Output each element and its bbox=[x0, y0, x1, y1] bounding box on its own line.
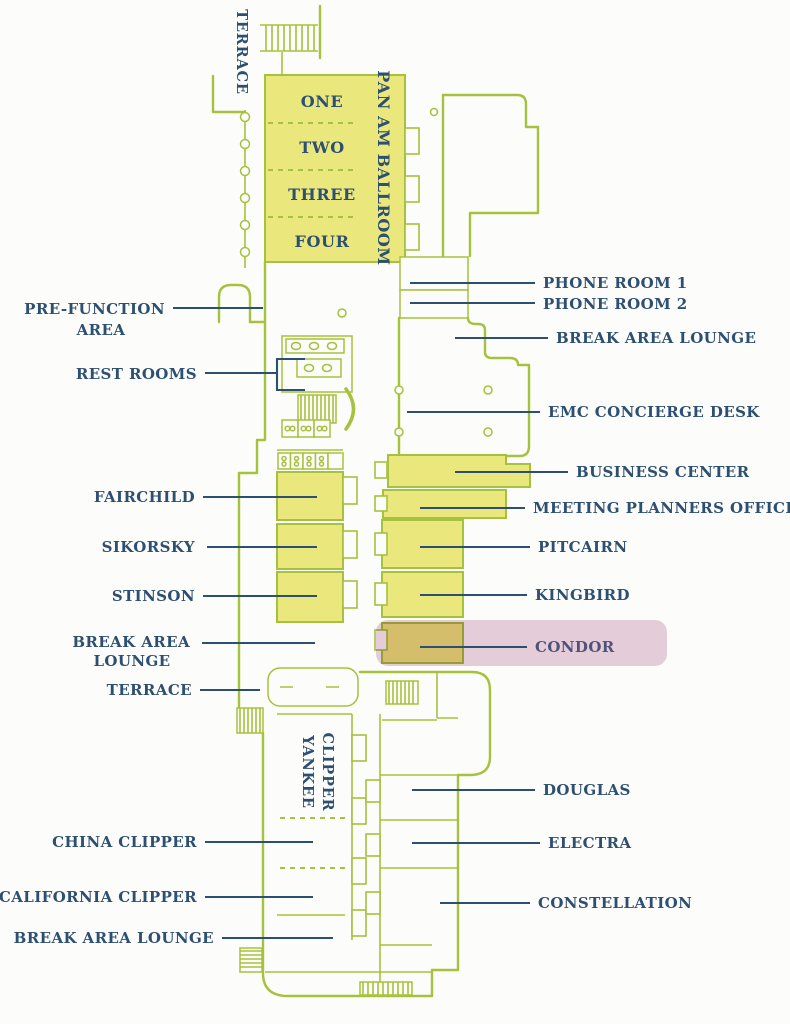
label-break-area-lounge-bottom: BREAK AREA LOUNGE bbox=[14, 929, 214, 947]
label-break-area-1: BREAK AREA bbox=[72, 633, 190, 651]
label-section-three: THREE bbox=[288, 185, 356, 204]
label-section-two: TWO bbox=[299, 138, 345, 157]
label-pan-am-ballroom: PAN AM BALLROOM bbox=[374, 70, 393, 266]
label-section-one: ONE bbox=[301, 92, 344, 111]
label-california-clipper: CALIFORNIA CLIPPER bbox=[0, 888, 197, 906]
bottom-left-stairs-icon bbox=[240, 948, 262, 972]
label-prefunction-1: PRE-FUNCTION bbox=[24, 300, 165, 318]
left-labels: PRE-FUNCTION AREA REST ROOMS FAIRCHILD S… bbox=[0, 300, 214, 947]
label-phone-room-1: PHONE ROOM 1 bbox=[543, 274, 688, 292]
room-phone-rooms bbox=[400, 257, 468, 318]
mid-stairs-icon bbox=[298, 395, 336, 423]
label-stinson: STINSON bbox=[112, 587, 195, 605]
lower-left-stairs-icon bbox=[237, 708, 263, 733]
label-electra: ELECTRA bbox=[548, 834, 631, 852]
label-kingbird: KINGBIRD bbox=[535, 586, 630, 604]
column-icon bbox=[338, 309, 346, 317]
label-prefunction-2: AREA bbox=[76, 321, 126, 339]
label-sikorsky: SIKORSKY bbox=[102, 538, 195, 556]
column-icon bbox=[431, 109, 438, 116]
top-right-corridor bbox=[431, 95, 539, 256]
column-icon bbox=[395, 386, 403, 394]
label-terrace-top: TERRACE bbox=[233, 9, 250, 94]
label-fairchild: FAIRCHILD bbox=[94, 488, 195, 506]
label-pitcairn: PITCAIRN bbox=[538, 538, 627, 556]
bottom-stairs-icon bbox=[360, 982, 412, 995]
label-section-four: FOUR bbox=[295, 232, 350, 251]
room-meeting-planners-office bbox=[383, 490, 506, 518]
left-column-door-notches bbox=[343, 477, 357, 608]
label-clipper: CLIPPER bbox=[319, 732, 336, 811]
condor-highlight bbox=[376, 620, 667, 666]
terrace-arch bbox=[219, 285, 250, 322]
label-business-center: BUSINESS CENTER bbox=[576, 463, 750, 481]
label-yankee: YANKEE bbox=[299, 734, 316, 808]
label-break-area-2: LOUNGE bbox=[93, 652, 170, 670]
label-constellation: CONSTELLATION bbox=[538, 894, 692, 912]
bulge-stairs-icon bbox=[386, 681, 418, 704]
elevator-bank-icons bbox=[278, 420, 343, 469]
lower-door-notches bbox=[352, 735, 380, 936]
floor-plan-page: ONE TWO THREE FOUR PAN AM BALLROOM TERRA… bbox=[0, 0, 790, 1024]
column-icon bbox=[484, 428, 492, 436]
ballroom-door-notches bbox=[405, 128, 419, 250]
label-douglas: DOUGLAS bbox=[543, 781, 631, 799]
label-china-clipper: CHINA CLIPPER bbox=[52, 833, 197, 851]
label-break-area-lounge: BREAK AREA LOUNGE bbox=[556, 329, 756, 347]
label-phone-room-2: PHONE ROOM 2 bbox=[543, 295, 688, 313]
desk-arc-icon bbox=[346, 389, 354, 429]
label-restrooms: REST ROOMS bbox=[76, 365, 197, 383]
label-emc-concierge-desk: EMC CONCIERGE DESK bbox=[548, 403, 760, 421]
right-labels: PHONE ROOM 1 PHONE ROOM 2 BREAK AREA LOU… bbox=[533, 274, 790, 912]
top-terrace-structure bbox=[213, 76, 265, 322]
floor-plan: ONE TWO THREE FOUR PAN AM BALLROOM TERRA… bbox=[0, 0, 790, 1024]
top-stairs-icon bbox=[260, 6, 320, 75]
lower-block-structure bbox=[263, 668, 490, 996]
room-pitcairn bbox=[382, 520, 463, 568]
label-condor: CONDOR bbox=[535, 638, 615, 656]
label-terrace: TERRACE bbox=[107, 681, 192, 699]
label-meeting-planners-office: MEETING PLANNERS OFFICE bbox=[533, 499, 790, 517]
column-icon bbox=[395, 428, 403, 436]
column-icon bbox=[484, 386, 492, 394]
